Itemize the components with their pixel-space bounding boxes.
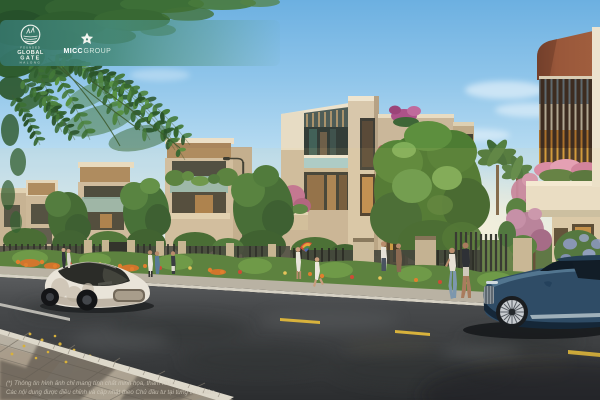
svg-text:FOUNDED: FOUNDED: [20, 45, 40, 49]
svg-text:HALONG: HALONG: [20, 61, 42, 65]
svg-text:Các nội dung được điều chỉnh v: Các nội dung được điều chỉnh và cập nhật…: [6, 389, 216, 396]
svg-text:MICC: MICC: [64, 48, 84, 55]
svg-text:(*) Thông tin hình ảnh chỉ man: (*) Thông tin hình ảnh chỉ mang tính chấ…: [6, 380, 177, 387]
svg-text:GROUP: GROUP: [84, 48, 112, 55]
